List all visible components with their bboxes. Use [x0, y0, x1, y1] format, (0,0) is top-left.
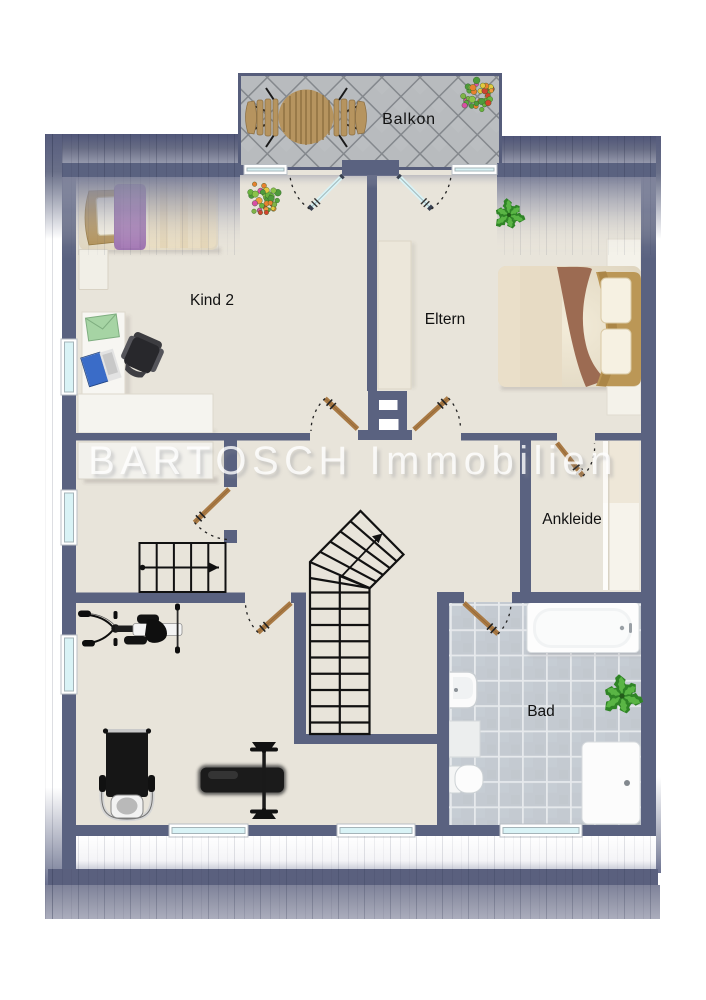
svg-text:Kind 2: Kind 2 — [190, 292, 234, 309]
svg-text:BARTOSCH Immobilien: BARTOSCH Immobilien — [88, 439, 618, 483]
svg-text:Balkon: Balkon — [382, 111, 436, 128]
svg-text:Ankleide: Ankleide — [542, 511, 601, 528]
svg-text:Eltern: Eltern — [425, 311, 466, 328]
svg-text:Bad: Bad — [527, 703, 555, 720]
